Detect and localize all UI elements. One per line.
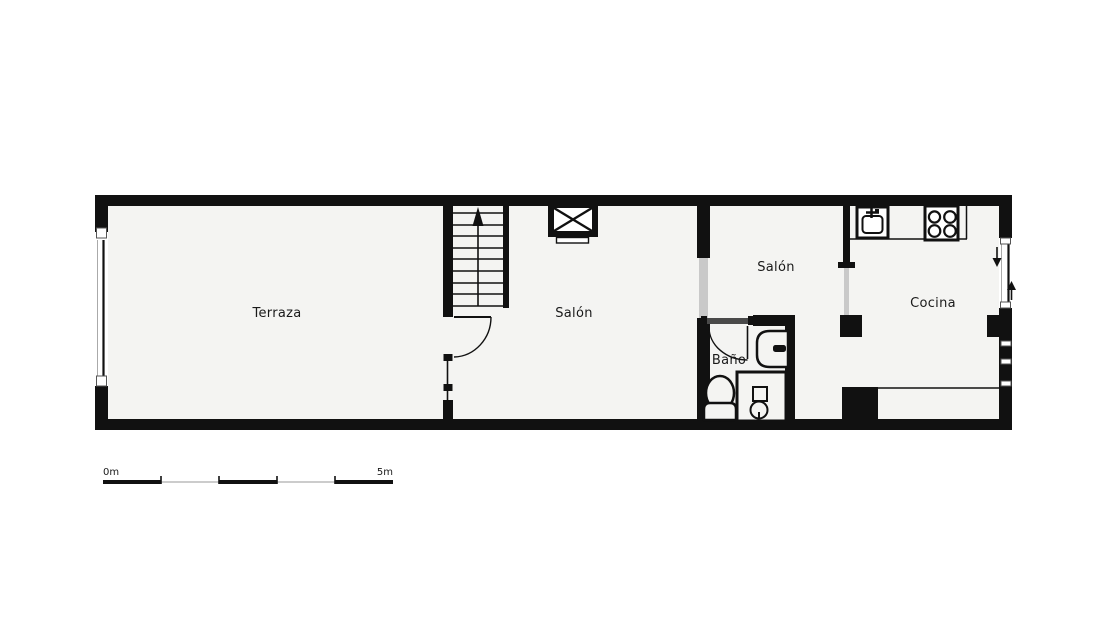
kitchen-block xyxy=(842,387,878,423)
wall-opening xyxy=(844,268,849,315)
room-label-cocina: Cocina xyxy=(910,296,956,311)
shower-icon xyxy=(737,372,786,421)
kitchen-right-pillar xyxy=(987,315,1012,337)
elevator-icon xyxy=(548,202,598,243)
terraza-salon-wall xyxy=(443,195,453,422)
stove-icon xyxy=(925,206,958,240)
scale-start-label: 0m xyxy=(103,467,119,478)
washbasin-icon xyxy=(757,331,788,367)
room-label-salon-main: Salón xyxy=(555,306,593,321)
floor-plan: Terraza Salón Salón Baño Cocina 0m 5m xyxy=(0,0,1110,626)
scale-end-label: 5m xyxy=(377,467,393,478)
floor-plan-page: Terraza Salón Salón Baño Cocina 0m 5m xyxy=(0,0,1110,626)
toilet-icon xyxy=(704,376,736,420)
wall-opening xyxy=(699,258,708,318)
scale-bar: 0m 5m xyxy=(103,467,393,484)
room-label-salon-small: Salón xyxy=(757,260,795,275)
kitchen-sink-icon xyxy=(857,207,888,238)
room-label-terraza: Terraza xyxy=(251,306,301,321)
kitchen-left-pillar xyxy=(840,315,862,337)
room-label-bano: Baño xyxy=(712,353,746,368)
